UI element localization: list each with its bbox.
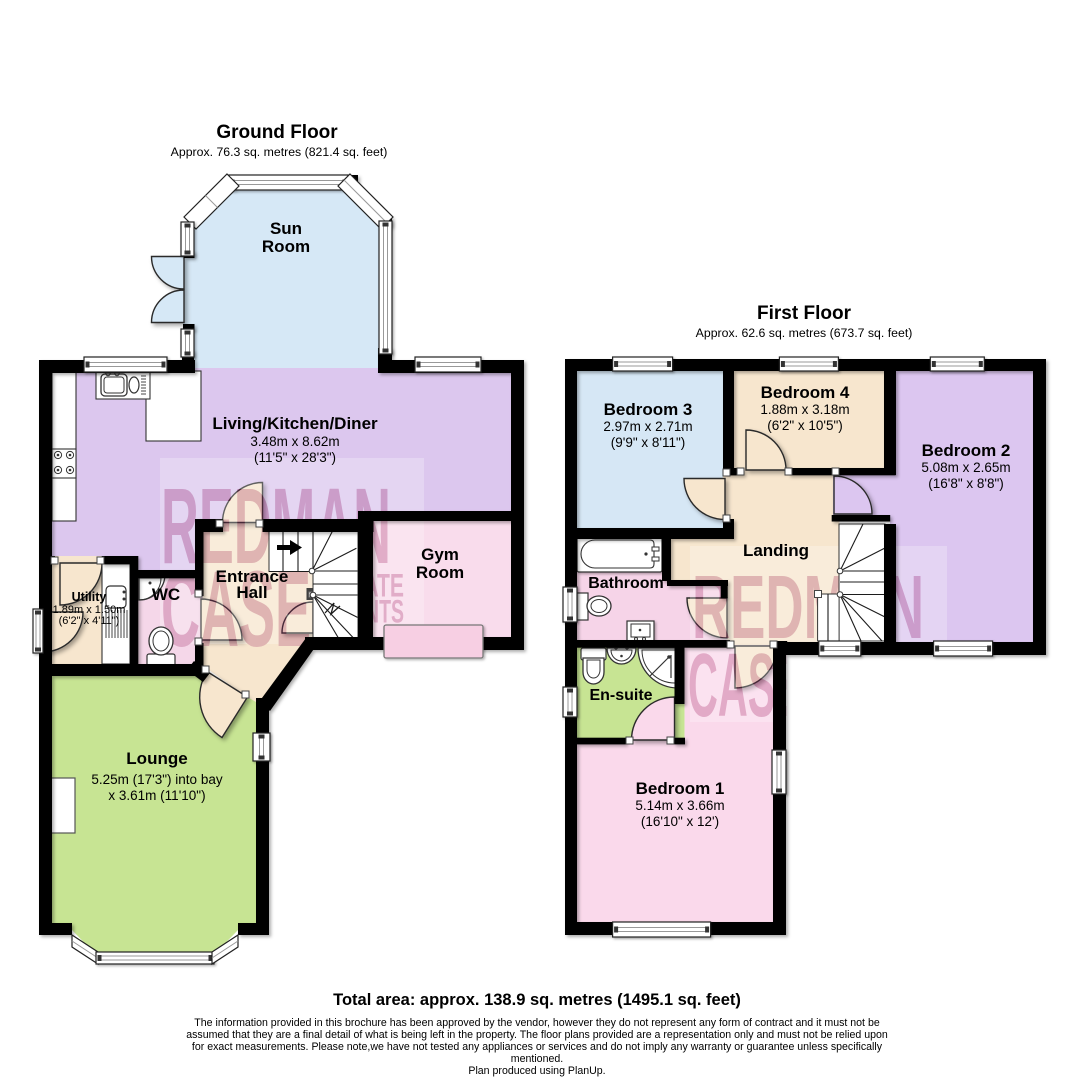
svg-text:Living/Kitchen/Diner: Living/Kitchen/Diner [212, 414, 378, 433]
svg-text:Approx. 76.3 sq. metres (821.4: Approx. 76.3 sq. metres (821.4 sq. feet) [171, 145, 388, 159]
svg-text:5.25m (17'3") into bay: 5.25m (17'3") into bay [91, 772, 222, 787]
svg-text:En-suite: En-suite [589, 687, 652, 704]
svg-text:Plan produced using PlanUp.: Plan produced using PlanUp. [468, 1065, 605, 1077]
svg-text:Bedroom 3: Bedroom 3 [604, 400, 693, 419]
svg-text:(16'8" x 8'8"): (16'8" x 8'8") [928, 476, 1004, 491]
svg-text:Total area: approx. 138.9 sq.: Total area: approx. 138.9 sq. metres (14… [333, 991, 741, 1009]
svg-text:Bedroom 2: Bedroom 2 [922, 441, 1011, 460]
svg-text:(6'2" x 10'5"): (6'2" x 10'5") [767, 418, 843, 433]
svg-text:x 3.61m (11'10"): x 3.61m (11'10") [108, 788, 205, 803]
svg-text:(11'5" x 28'3"): (11'5" x 28'3") [254, 450, 336, 465]
svg-text:Hall: Hall [236, 583, 267, 602]
svg-text:for exact measurements. Please: for exact measurements. Please note,we h… [192, 1041, 883, 1053]
svg-text:Lounge: Lounge [126, 749, 187, 768]
svg-text:Gym: Gym [421, 545, 459, 564]
svg-text:1.88m x 3.18m: 1.88m x 3.18m [760, 402, 849, 417]
svg-text:5.14m x 3.66m: 5.14m x 3.66m [635, 798, 724, 813]
svg-text:(16'10" x 12'): (16'10" x 12') [641, 814, 719, 829]
svg-text:Utility: Utility [72, 590, 107, 604]
svg-text:Ground Floor: Ground Floor [216, 122, 338, 143]
svg-text:mentioned.: mentioned. [511, 1053, 563, 1065]
svg-text:Bedroom 1: Bedroom 1 [636, 779, 725, 798]
svg-text:Bathroom: Bathroom [588, 575, 664, 592]
svg-text:2.97m x 2.71m: 2.97m x 2.71m [603, 419, 692, 434]
svg-text:Room: Room [262, 237, 310, 256]
svg-text:Sun: Sun [270, 219, 302, 238]
svg-text:3.48m x 8.62m: 3.48m x 8.62m [250, 434, 339, 449]
svg-text:(6'2" x 4'11"): (6'2" x 4'11") [59, 615, 120, 627]
svg-text:Approx. 62.6 sq. metres (673.7: Approx. 62.6 sq. metres (673.7 sq. feet) [696, 326, 913, 340]
svg-text:First Floor: First Floor [757, 303, 852, 324]
svg-text:Bedroom 4: Bedroom 4 [761, 383, 850, 402]
svg-text:WC: WC [152, 585, 180, 604]
svg-text:(9'9" x 8'11"): (9'9" x 8'11") [611, 435, 686, 450]
svg-text:5.08m x 2.65m: 5.08m x 2.65m [921, 460, 1010, 475]
svg-text:Landing: Landing [743, 541, 809, 560]
svg-text:The information provided in th: The information provided in this brochur… [194, 1017, 880, 1029]
svg-text:assumed that they are a final: assumed that they are a final detail of … [186, 1029, 888, 1041]
svg-text:Room: Room [416, 563, 464, 582]
